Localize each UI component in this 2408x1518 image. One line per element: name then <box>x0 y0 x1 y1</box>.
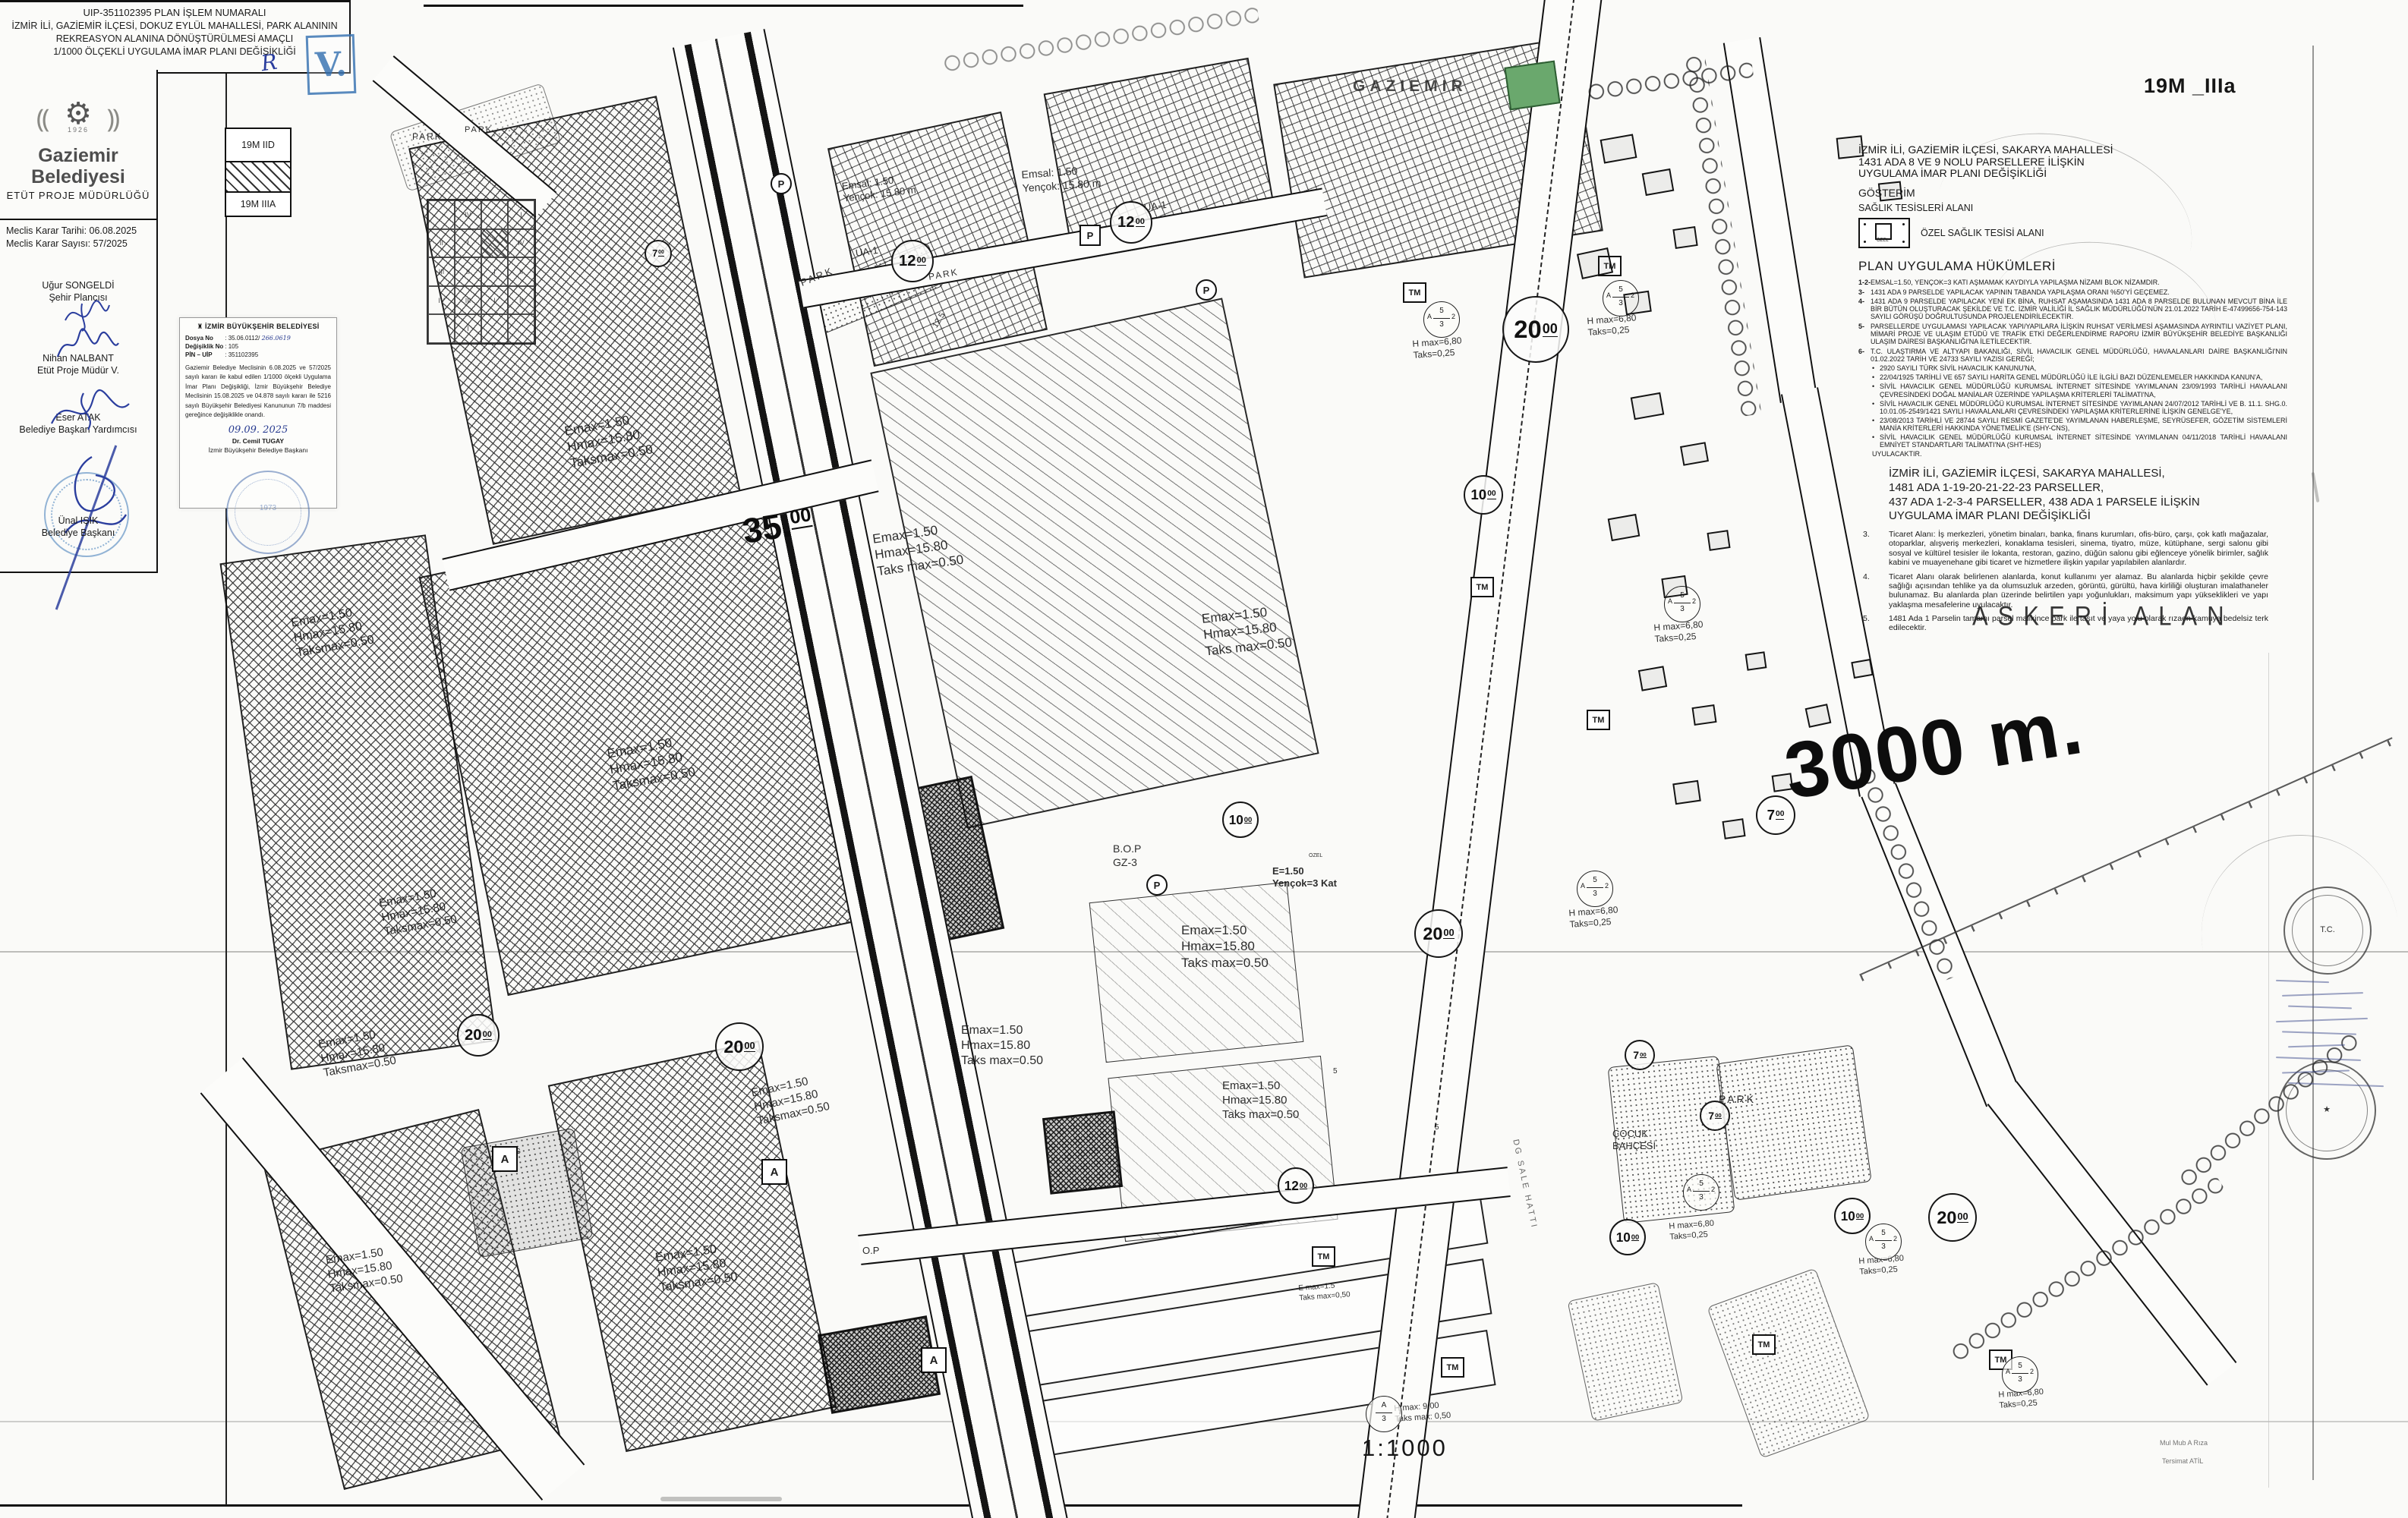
pafta-cell: I <box>455 229 481 258</box>
zoning-fraction-circle: 53A2 <box>2002 1356 2038 1393</box>
a-parcel-symbol: A <box>492 1146 518 1172</box>
map-label: ÇOCUK BAHÇESİ <box>1612 1128 1656 1153</box>
map-label: Emax=1.50 Hmax=15.80 Taks max=0.50 <box>961 1023 1043 1069</box>
plan-provisions-list: 1-2-EMSAL=1.50, YENÇOK=3 KATI AŞMAMAK KA… <box>1858 279 2287 449</box>
approval-paragraph: Gaziemir Belediye Meclisinin 6.08.2025 v… <box>185 364 331 420</box>
handwritten-file-number: 266.0619 <box>262 335 291 342</box>
legend-item-label: ÖZEL SAĞLIK TESİSİ ALANI <box>1921 228 2044 238</box>
pafta-cell: I <box>481 257 508 286</box>
map-label: E=1.50 Yençok=3 Kat <box>1272 865 1337 890</box>
distance-label: 3000 m. <box>1779 682 2089 817</box>
building-footprint <box>1722 818 1745 839</box>
illegible-margin-text <box>2312 472 2320 502</box>
road-width-circle: 2000 <box>1414 909 1463 958</box>
building-footprint <box>1672 780 1701 805</box>
plan-title-line: İZMİR İLİ, GAZİEMİR İLÇESİ, DOKUZ EYLÜL … <box>0 20 349 31</box>
building-footprint <box>1638 666 1667 691</box>
transformer-tm-symbol: TM <box>1403 282 1426 303</box>
parking-symbol: P <box>1146 874 1168 896</box>
map-label: 5 <box>1333 1067 1338 1077</box>
map-label: H max=6,80 Taks=0,25 <box>1669 1219 1715 1243</box>
map-label: H max=6,80 Taks=0,25 <box>1587 312 1637 338</box>
department-name: ETÜT PROJE MÜDÜRLÜĞÜ <box>0 190 156 201</box>
map-label: H max=6,80 Taks=0,25 <box>1568 904 1619 930</box>
zoning-fraction-circle: 53A2 <box>1577 871 1613 907</box>
council-decision-info: Meclis Karar Tarihi: 06.08.2025 Meclis K… <box>6 225 150 250</box>
handwritten-date: 09.09. 2025 <box>185 424 331 436</box>
road-width-circle: 2000 <box>715 1022 764 1071</box>
sheet-index-legend: 19M IID 19M IIIA <box>225 128 292 217</box>
pafta-cell: IV <box>508 229 534 258</box>
map-label: PARK <box>465 125 493 136</box>
building-footprint <box>1623 291 1652 315</box>
building-footprint <box>1631 392 1665 420</box>
pafta-cell: II <box>508 257 534 286</box>
parking-symbol: P <box>1196 279 1217 301</box>
road-width-circle: 700 <box>1700 1101 1730 1131</box>
transformer-tm-symbol: TM <box>1441 1357 1464 1378</box>
transformer-tm-symbol: TM <box>1752 1334 1776 1355</box>
district-label: GAZIEMIR <box>1353 77 1467 96</box>
parking-symbol: P <box>1080 225 1101 246</box>
signatory: Ünal IŞIKBelediye Başkanı <box>0 515 156 540</box>
building-footprint <box>1680 442 1709 466</box>
building-footprint <box>1672 226 1697 249</box>
a-parcel-symbol: A <box>761 1159 787 1185</box>
zoning-fraction-circle: 53A2 <box>1683 1174 1719 1211</box>
road-width-circle: 2000 <box>1928 1193 1977 1242</box>
road-width-circle: 1000 <box>1834 1198 1871 1234</box>
pafta-cell: II <box>455 257 481 286</box>
pafta-cell: IV <box>455 200 481 229</box>
map-label: DG SALE HATTI <box>1510 1138 1540 1230</box>
pafta-cell: II <box>508 286 534 315</box>
road-width-circle: 700 <box>1625 1040 1655 1070</box>
tower-icon: ♜ <box>197 323 203 330</box>
dense-hatch-block <box>1042 1110 1123 1194</box>
plan-provision-bullet: •SİVİL HAVACILIK GENEL MÜDÜRLÜĞÜ KURUMSA… <box>1872 400 2287 415</box>
plan-provision-bullet: •2920 SAYILI TÜRK SİVİL HAVACILIK KANUNU… <box>1872 364 2287 372</box>
pafta-cell: IV <box>428 286 455 315</box>
plan-provision-item: 5-PARSELLERDE UYGULAMASI YAPILACAK YAPI/… <box>1858 323 2287 345</box>
map-label: Emax=1.50 Hmax=15.80 Taks max=0.50 <box>1222 1079 1299 1122</box>
pafta-cell <box>428 314 455 343</box>
map-label: PARK <box>412 131 443 143</box>
plan-provision-item: 4-1431 ADA 9 PARSELDE YAPILACAK YENİ EK … <box>1858 298 2287 320</box>
map-label: O.P <box>862 1245 879 1257</box>
municipality-logo: ⸩ ⚙ ⸩ 1926 <box>43 99 114 147</box>
council-decision-number: Meclis Karar Sayısı: 57/2025 <box>6 238 150 250</box>
park-area <box>1716 1044 1872 1201</box>
road-width-circle: 1200 <box>891 240 934 282</box>
building-footprint <box>1691 704 1716 726</box>
zoning-fraction-circle: A3 <box>1366 1396 1402 1432</box>
scanned-plan-sheet: IVIIIIIVIIIIIIIIIVIIIIIII Emax=1.50 Hmax… <box>0 0 2408 1518</box>
transformer-tm-symbol: TM <box>1587 710 1610 730</box>
building-footprint <box>1707 530 1730 551</box>
road-width-circle: 1000 <box>1464 475 1503 515</box>
plan-title-line: REKREASYON ALANINA DÖNÜŞTÜRÜLMESİ AMAÇLI <box>0 33 349 44</box>
signature-icon <box>44 387 135 433</box>
commerce-note-item: 3.Ticaret Alanı: İş merkezleri, yönetim … <box>1858 530 2287 568</box>
commerce-notes-list: 3.Ticaret Alanı: İş merkezleri, yönetim … <box>1858 530 2287 633</box>
v-approval-stamp: V. <box>306 34 357 95</box>
light-hatch-block <box>1089 882 1304 1063</box>
map-label: H max: 9,00 Taks max: 0,50 <box>1394 1400 1451 1425</box>
pafta-cell: II <box>428 229 455 258</box>
building-footprint <box>1851 659 1873 679</box>
zoning-fraction-circle: 53A2 <box>1423 301 1460 338</box>
plan-provision-bullet: •SİVİL HAVACILIK GENEL MÜDÜRLÜĞÜ KURUMSA… <box>1872 433 2287 449</box>
road-width-circle: 1000 <box>1609 1219 1646 1255</box>
health-facility-symbol: ÖZEL <box>1858 218 1910 248</box>
plan-title-line: 1/1000 ÖLÇEKLİ UYGULAMA İMAR PLANI DEĞİŞ… <box>0 46 349 57</box>
plan-process-number: UIP-351102395 PLAN İŞLEM NUMARALI <box>0 7 349 18</box>
map-label: B.O.P GZ-3 <box>1113 842 1141 869</box>
council-decision-date: Meclis Karar Tarihi: 06.08.2025 <box>6 225 150 238</box>
plan-provision-item: 3-1431 ADA 9 PARSELDE YAPILACAK YAPININ … <box>1858 288 2287 296</box>
plan-provision-item: 6-T.C. ULAŞTIRMA VE ALTYAPI BAKANLIĞI, S… <box>1858 348 2287 363</box>
pafta-cell <box>428 200 455 229</box>
plan-provision-bullet: •22/04/1925 TARİHLİ VE 657 SAYILI HARİTA… <box>1872 373 2287 381</box>
map-label: Emax=1.50 Hmax=15.80 Taks max=0.50 <box>1181 922 1269 971</box>
commerce-note-item: 4.Ticaret Alanı olarak belirlenen alanla… <box>1858 572 2287 610</box>
map-label: 5 <box>1435 1123 1439 1133</box>
pafta-cell: I <box>508 200 534 229</box>
road-width-circle: 700 <box>1756 795 1795 835</box>
amendment2-title: İZMİR İLİ, GAZİEMİR İLÇESİ, SAKARYA MAHA… <box>1889 467 2287 524</box>
parcel-symbol <box>1875 223 1892 240</box>
plan-provisions-heading: PLAN UYGULAMA HÜKÜMLERİ <box>1858 259 2287 274</box>
green-area <box>1707 1268 1870 1458</box>
divider <box>0 219 156 220</box>
map-scale-label: 1:1000 <box>1362 1435 1448 1462</box>
plan-provision-bullet: •SİVİL HAVACILIK GENEL MÜDÜRLÜĞÜ KURUMSA… <box>1872 383 2287 398</box>
handwritten-line <box>2282 1031 2356 1035</box>
sheet-index-19m-iid: 19M IID <box>226 129 290 161</box>
pafta-index-grid: IVIIIIIVIIIIIIIIIVIIIIIII <box>427 199 536 345</box>
health-area-heading: SAĞLIK TESİSLERİ ALANI <box>1858 203 2287 213</box>
map-label: Mul Mub A Rıza <box>2160 1439 2208 1447</box>
green-area <box>1567 1282 1683 1422</box>
road-width-circle: 2000 <box>457 1014 500 1057</box>
building-footprint <box>1642 168 1675 196</box>
building-footprint <box>1608 514 1641 541</box>
map-label: E max=1.5 Taks max=0,50 <box>1298 1280 1351 1303</box>
sheet-index-19m-iiia: 19M IIIA <box>226 193 290 216</box>
plan-notes-panel: İZMİR İLİ, GAZİEMİR İLÇESİ, SAKARYA MAHA… <box>1858 144 2287 638</box>
green-zone-patch <box>1504 61 1560 111</box>
zoning-fraction-circle: 53A2 <box>1865 1224 1902 1260</box>
plan-provisions-closing: UYULACAKTIR. <box>1872 450 2287 458</box>
road-width-circle: 2000 <box>1502 296 1569 363</box>
a-parcel-symbol: A <box>921 1347 947 1373</box>
illegible-footer-text <box>660 1497 782 1501</box>
signature-icon <box>53 328 121 361</box>
transformer-tm-symbol: TM <box>1312 1246 1335 1267</box>
plan-title-block: UIP-351102395 PLAN İŞLEM NUMARALI İZMİR … <box>0 0 351 74</box>
plan-provision-bullet: •23/08/2013 TARİHLİ VE 28744 SAYILI RESM… <box>1872 417 2287 432</box>
sheet-code: 19M _IIIa <box>2144 74 2236 98</box>
lpg-parcel <box>460 1128 593 1258</box>
pafta-cell: III <box>455 286 481 315</box>
amendment1-title: İZMİR İLİ, GAZİEMİR İLÇESİ, SAKARYA MAHA… <box>1858 144 2287 180</box>
map-label: Emax=1.50 Hmax=15.80 Taks max=0.50 <box>1201 602 1293 659</box>
pafta-cell <box>508 314 534 343</box>
pafta-cell: I <box>455 314 481 343</box>
transformer-tm-symbol: TM <box>1470 577 1494 597</box>
map-label: ÖZEL <box>1309 853 1322 860</box>
file-info-table: Dosya No : 35.06.0112/ 266.0619 Değişikl… <box>185 335 292 360</box>
pafta-cell <box>481 229 508 258</box>
tree-row <box>1586 61 1754 103</box>
building-footprint <box>1600 134 1637 163</box>
building-footprint <box>1661 575 1688 598</box>
hatch-swatch <box>226 161 290 193</box>
plan-provision-item: 1-2-EMSAL=1.50, YENÇOK=3 KATI AŞMAMAK KA… <box>1858 279 2287 286</box>
metropolitan-title: ♜ İZMİR BÜYÜKŞEHİR BELEDİYESİ <box>185 323 331 331</box>
pafta-cell <box>481 200 508 229</box>
pafta-cell <box>481 314 508 343</box>
road-width-circle: 1200 <box>1278 1167 1314 1204</box>
curved-road-segment <box>1987 1081 2237 1385</box>
legend-row: ÖZEL ÖZEL SAĞLIK TESİSİ ALANI <box>1858 218 2287 248</box>
round-stamp: T.C. <box>2284 887 2372 975</box>
legend-heading: GÖSTERİM <box>1858 187 2287 199</box>
parking-symbol: P <box>771 173 792 194</box>
municipality-approval-panel: ⸩ ⚙ ⸩ 1926 Gaziemir Belediyesi ETÜT PROJ… <box>0 70 158 573</box>
map-label: Emsal: 1.50 Yençok: 15.80 m <box>1021 163 1102 195</box>
building-footprint <box>1745 651 1767 670</box>
map-label: H max=6,80 Taks=0,25 <box>1653 619 1704 644</box>
logo-year: 1926 <box>43 126 114 134</box>
road-width-circle: 1200 <box>1110 201 1152 244</box>
map-label: H max=6,80 Taks=0,25 <box>1412 335 1463 361</box>
handwritten-r-annotation: R <box>260 49 279 77</box>
road-width-circle: 700 <box>645 240 672 267</box>
pafta-cell: I <box>481 286 508 315</box>
laurel-icon: ⸩ <box>107 100 120 135</box>
commerce-note-item: 5.1481 Ada 1 Parselin tamamı parsel mali… <box>1858 614 2287 633</box>
metropolitan-mayor: Dr. Cemil TUGAYİzmir Büyükşehir Belediye… <box>185 437 331 455</box>
laurel-icon: ⸩ <box>36 100 49 135</box>
metropolitan-round-stamp <box>226 471 310 554</box>
municipality-name: Gaziemir Belediyesi <box>0 146 156 187</box>
map-label: Tersimat ATİL <box>2162 1457 2203 1466</box>
round-stamp: ★ <box>2277 1061 2376 1160</box>
pafta-cell: III <box>428 257 455 286</box>
road-width-circle: 1000 <box>1222 802 1259 838</box>
